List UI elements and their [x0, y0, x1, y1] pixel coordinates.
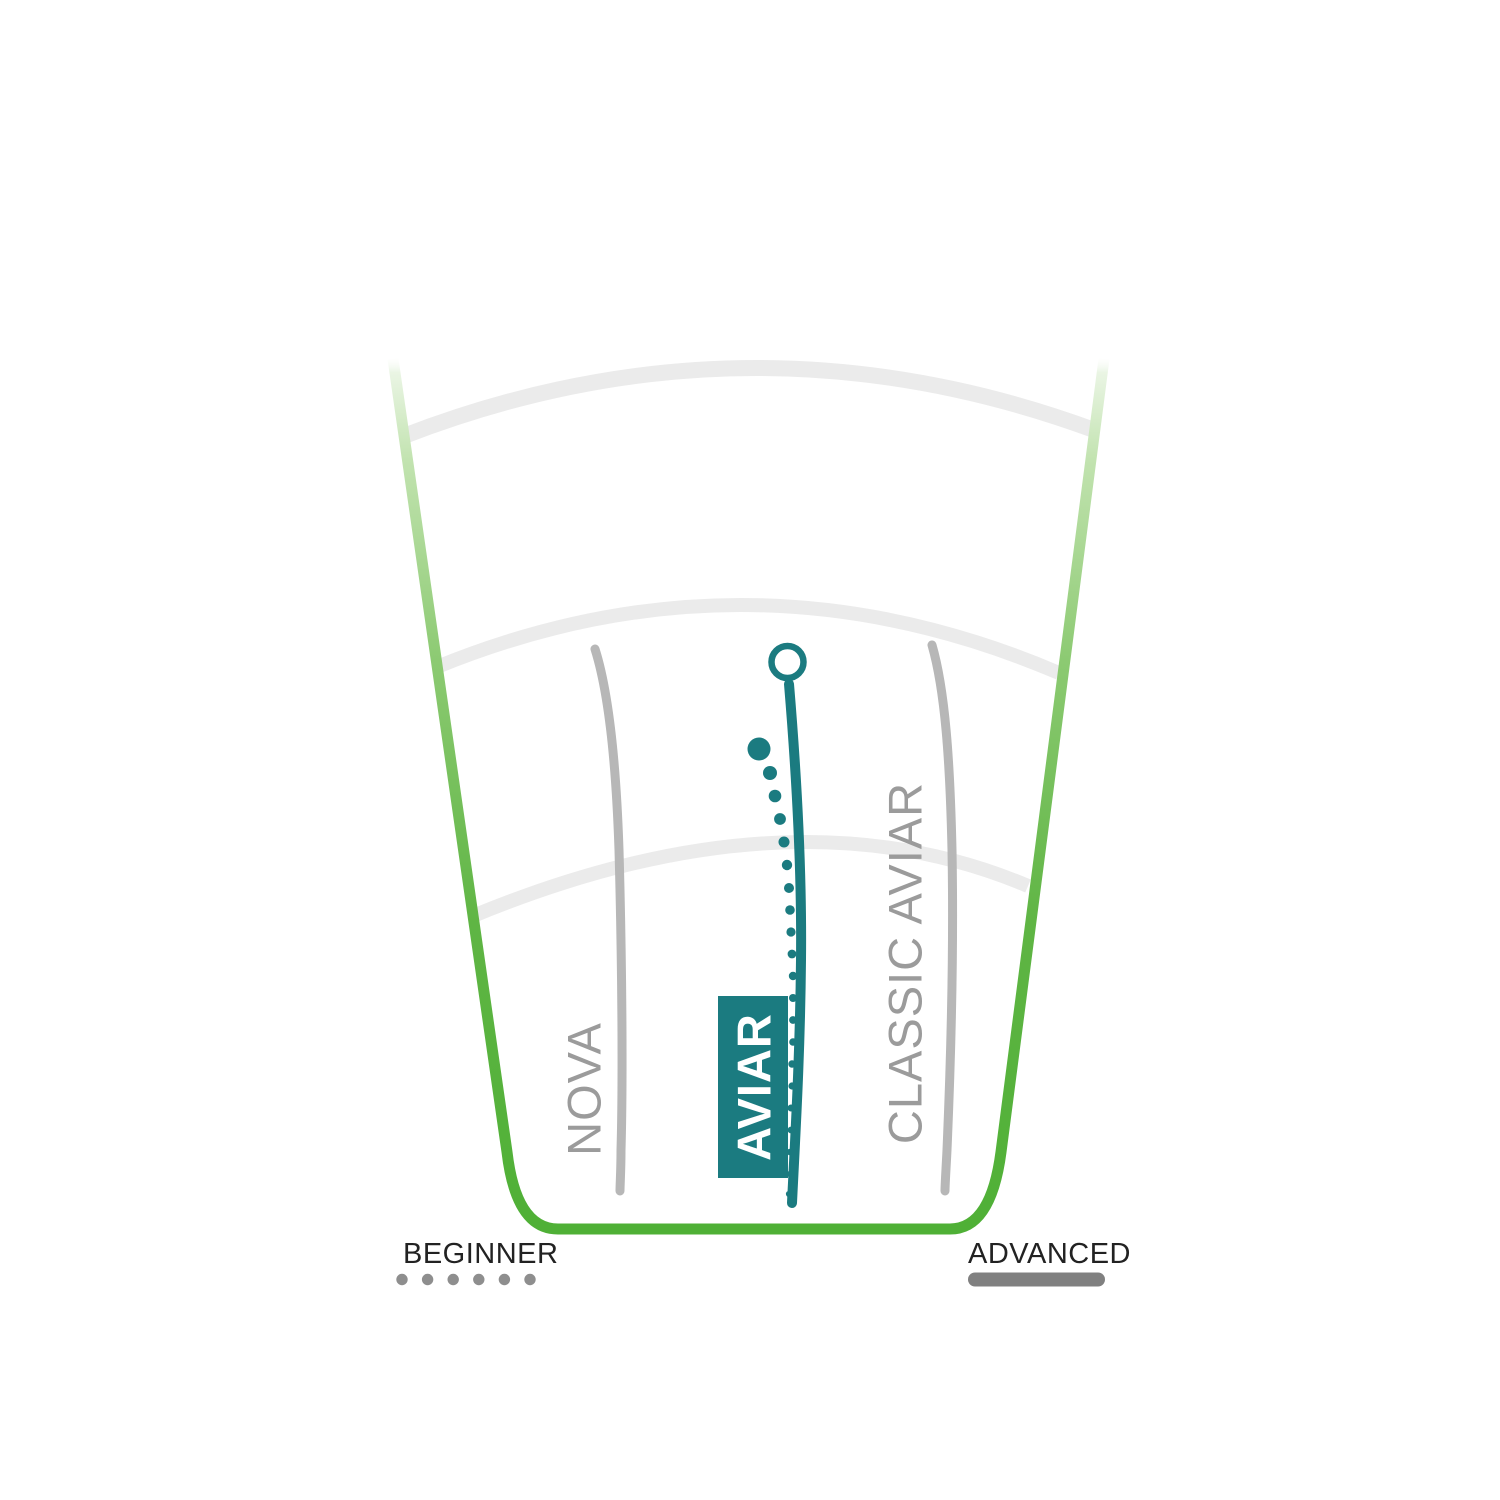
distance-ring-inner [473, 842, 1028, 916]
distance-ring-outer [404, 368, 1094, 436]
legend-advanced-solid-line [968, 1273, 1105, 1287]
aviar-fade-dot [788, 950, 797, 959]
legend-advanced-label: ADVANCED [968, 1238, 1131, 1270]
distance-ring-middle [437, 605, 1059, 673]
legend-beginner-dot [524, 1274, 535, 1285]
legend-beginner-dot [448, 1274, 459, 1285]
nova-label: NOVA [557, 1022, 610, 1156]
aviar-fade-dot [763, 766, 777, 780]
legend-beginner-dot [473, 1274, 484, 1285]
aviar-fade-dot [782, 860, 792, 870]
aviar-fade-dot [784, 883, 794, 893]
flight-chart-svg: NOVA CLASSIC AVIAR AVIAR BEGINNER ADVANC… [0, 0, 1500, 1500]
classic-aviar-label: CLASSIC AVIAR [878, 782, 931, 1144]
legend-beginner-dot [499, 1274, 510, 1285]
aviar-fade-dot [748, 738, 771, 761]
classic-aviar-flight-line [932, 645, 953, 1191]
legend-beginner-label: BEGINNER [403, 1238, 558, 1270]
aviar-fade-dot [779, 837, 790, 848]
aviar-flight-line [789, 684, 801, 1203]
aviar-fade-dot [785, 905, 795, 915]
legend-beginner-dotted-line [396, 1274, 535, 1285]
flight-chart-container: NOVA CLASSIC AVIAR AVIAR BEGINNER ADVANC… [0, 0, 1500, 1500]
aviar-fade-dot [786, 927, 795, 936]
aviar-fade-dot [769, 790, 782, 803]
aviar-end-marker-circle [772, 646, 804, 678]
aviar-fade-dot [774, 813, 786, 825]
legend-beginner-dot [422, 1274, 433, 1285]
legend-beginner-dot [396, 1274, 407, 1285]
aviar-label: AVIAR [727, 1013, 780, 1161]
